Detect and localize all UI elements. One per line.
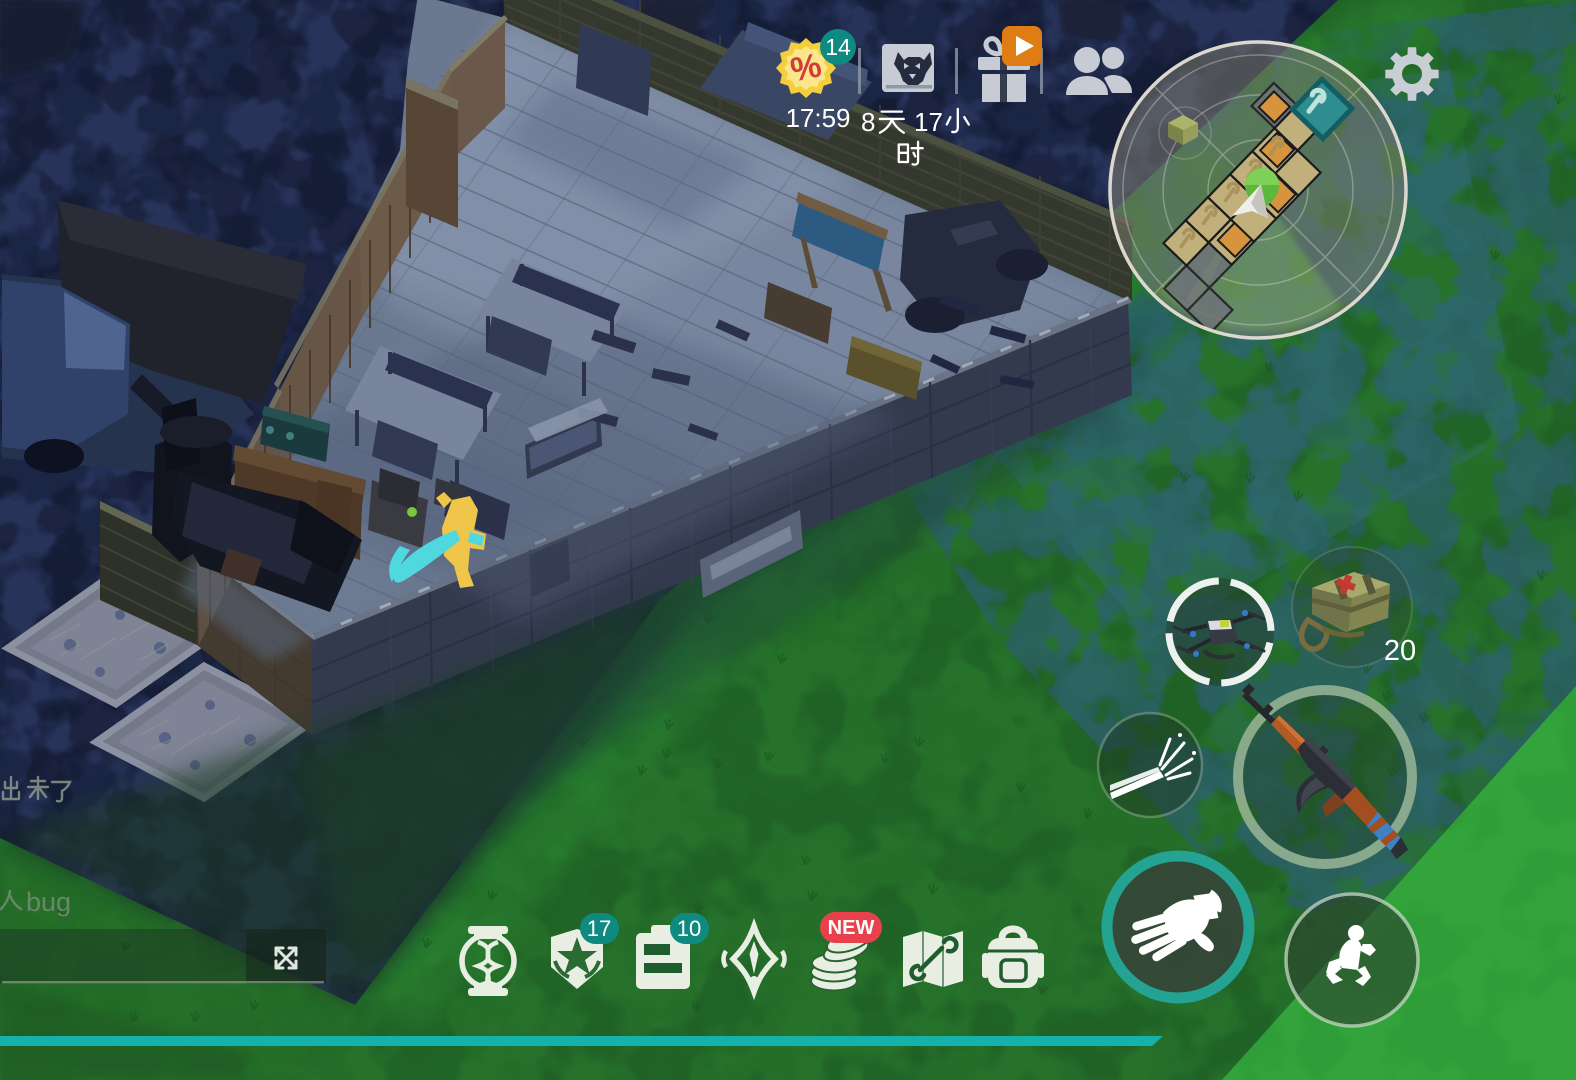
svg-text:17: 17	[587, 916, 611, 941]
svg-text:14: 14	[825, 34, 851, 60]
svg-text:bug: bug	[26, 887, 71, 917]
svg-text:NEW: NEW	[828, 917, 875, 939]
svg-text:10: 10	[677, 916, 701, 941]
svg-text:8: 8	[861, 107, 875, 137]
svg-text:17: 17	[914, 107, 943, 137]
svg-text:17:59: 17:59	[785, 103, 850, 133]
svg-text:20: 20	[1384, 635, 1416, 667]
